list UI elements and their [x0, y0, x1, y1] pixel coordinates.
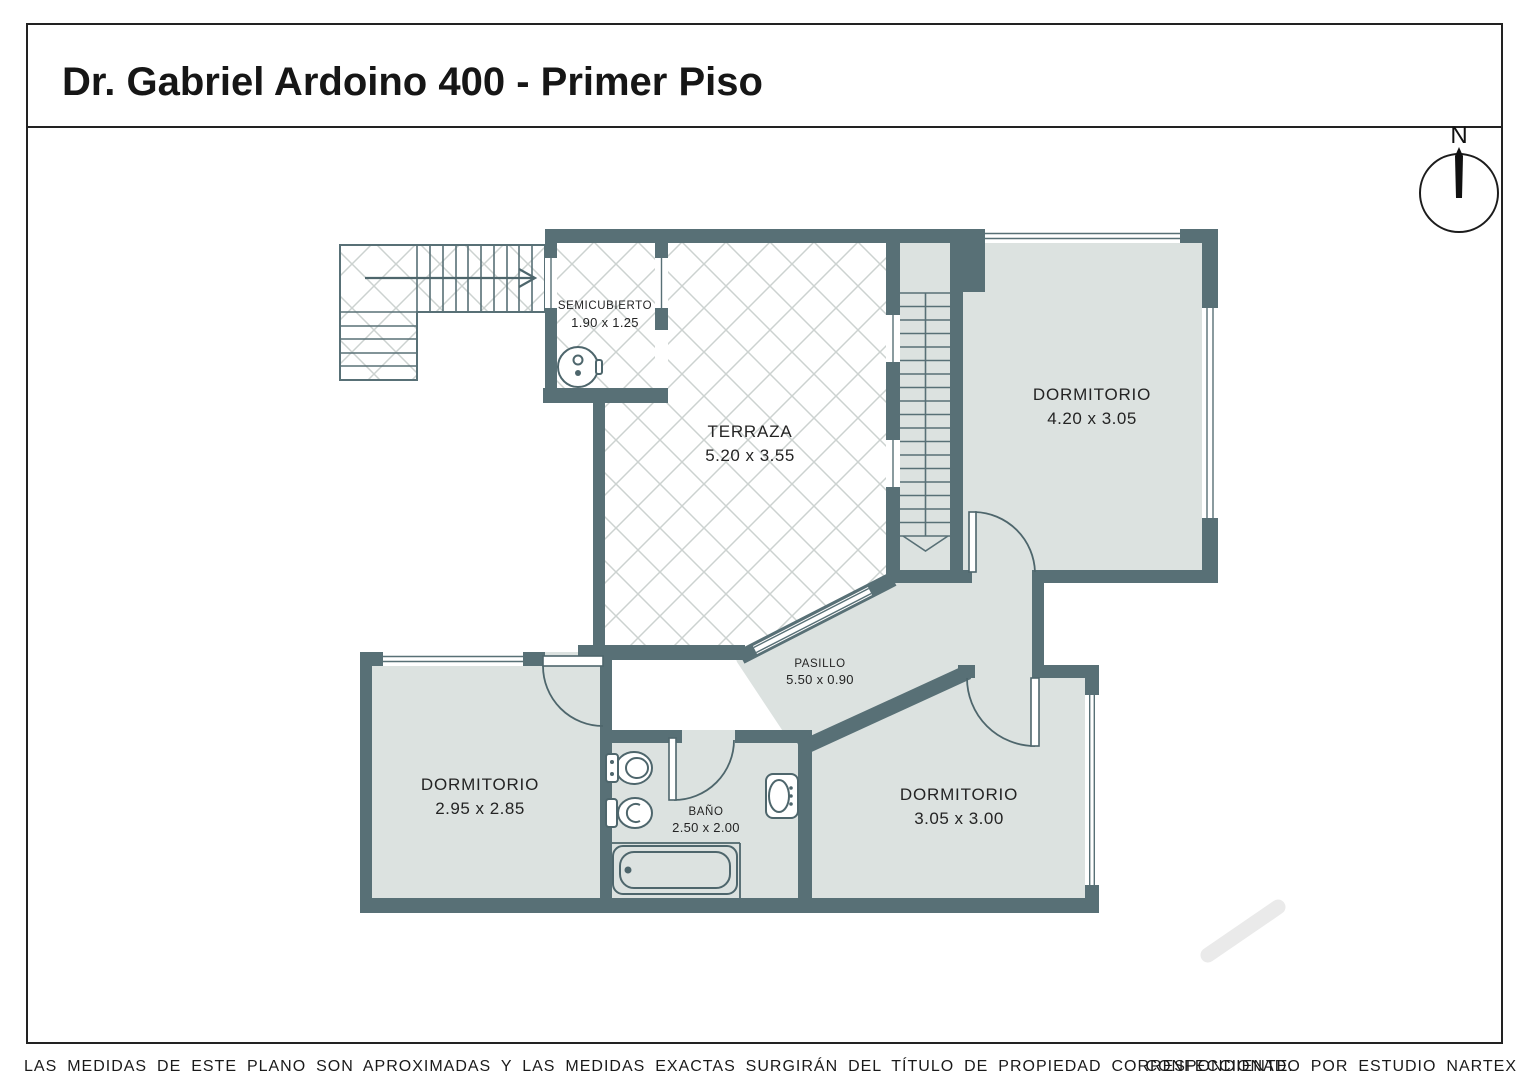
room-label-semicubierto: SEMICUBIERTO 1.90 x 1.25: [558, 300, 652, 330]
room-dims: 5.50 x 0.90: [786, 672, 854, 687]
window: [886, 315, 900, 362]
window: [1085, 695, 1099, 885]
footer-credit: CONFECCIONADO POR ESTUDIO NARTEX: [1146, 1058, 1517, 1075]
window: [1202, 308, 1218, 518]
plan-title: Dr. Gabriel Ardoino 400 - Primer Piso: [62, 60, 763, 104]
window: [655, 258, 668, 308]
room-dims: 5.20 x 3.55: [705, 446, 795, 465]
north-needle-icon: [1455, 147, 1463, 198]
toilet-icon: [606, 798, 652, 828]
room-dims: 2.50 x 2.00: [672, 820, 740, 835]
room-name: TERRAZA: [708, 422, 793, 441]
room-name: BAÑO: [689, 805, 724, 818]
room-name: SEMICUBIERTO: [558, 300, 652, 312]
room-dims: 2.95 x 2.85: [435, 799, 525, 818]
window: [383, 652, 523, 666]
footer-disclaimer: LAS MEDIDAS DE ESTE PLANO SON APROXIMADA…: [24, 1056, 1294, 1075]
north-label: N: [1450, 122, 1467, 149]
room-name: PASILLO: [794, 658, 845, 670]
floor-plan-canvas: Dr. Gabriel Ardoino 400 - Primer Piso N: [0, 0, 1528, 1080]
room-dims: 3.05 x 3.00: [914, 809, 1004, 828]
bidet-icon: [606, 752, 652, 784]
window: [886, 440, 900, 487]
room-name: DORMITORIO: [900, 785, 1018, 804]
window: [985, 229, 1180, 243]
room-dims: 4.20 x 3.05: [1047, 409, 1137, 428]
room-dims: 1.90 x 1.25: [571, 315, 639, 330]
sink-icon: [766, 774, 798, 818]
window: [545, 258, 557, 308]
room-name: DORMITORIO: [421, 775, 539, 794]
room-label-pasillo: PASILLO 5.50 x 0.90: [786, 658, 854, 687]
room-name: DORMITORIO: [1033, 385, 1151, 404]
